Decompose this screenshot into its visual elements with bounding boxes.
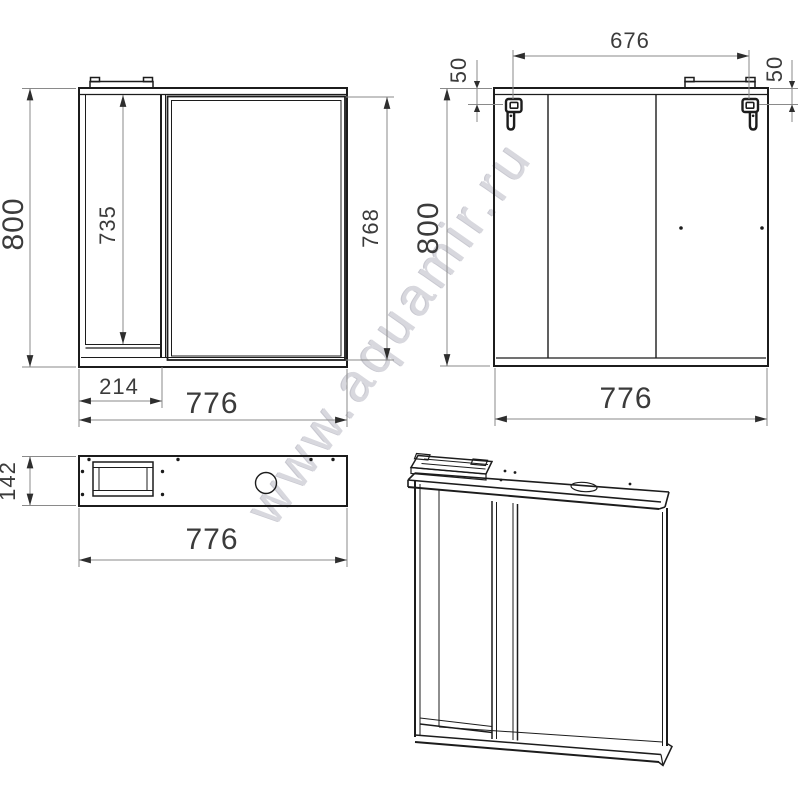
back-view-drawing bbox=[494, 78, 768, 367]
top-width-label: 776 bbox=[185, 525, 238, 555]
front-height-label: 800 bbox=[0, 197, 29, 250]
lamp-rail-back bbox=[685, 78, 755, 89]
back-hanger-offset-left-label: 50 bbox=[448, 57, 470, 83]
top-view-drawing bbox=[79, 456, 347, 506]
back-height-label: 800 bbox=[414, 201, 444, 254]
screw-dots-back bbox=[679, 226, 764, 230]
lamp-hole-circle bbox=[256, 473, 277, 494]
screw-dots-iso bbox=[500, 470, 632, 486]
hanger-bracket-left-icon bbox=[506, 99, 522, 130]
front-mirror-height-label: 768 bbox=[360, 208, 382, 248]
iso-view-drawing bbox=[408, 454, 672, 766]
front-width-label: 776 bbox=[185, 389, 238, 419]
back-hanger-offset-right-label: 50 bbox=[764, 56, 786, 82]
top-depth-label: 142 bbox=[0, 461, 19, 501]
back-width-label: 776 bbox=[599, 384, 652, 414]
lamp-rail-front bbox=[90, 78, 153, 89]
front-shelf-width-label: 214 bbox=[99, 376, 139, 398]
front-shelf-height-label: 735 bbox=[97, 205, 119, 245]
technical-drawing-page: www.aquamir.ru bbox=[0, 0, 800, 800]
front-view-dimensions bbox=[22, 89, 394, 428]
lamp-box-top bbox=[93, 462, 153, 496]
back-hanger-spacing-label: 676 bbox=[610, 30, 650, 52]
hanger-bracket-right-icon bbox=[743, 99, 759, 130]
drawing-canvas bbox=[0, 0, 800, 800]
